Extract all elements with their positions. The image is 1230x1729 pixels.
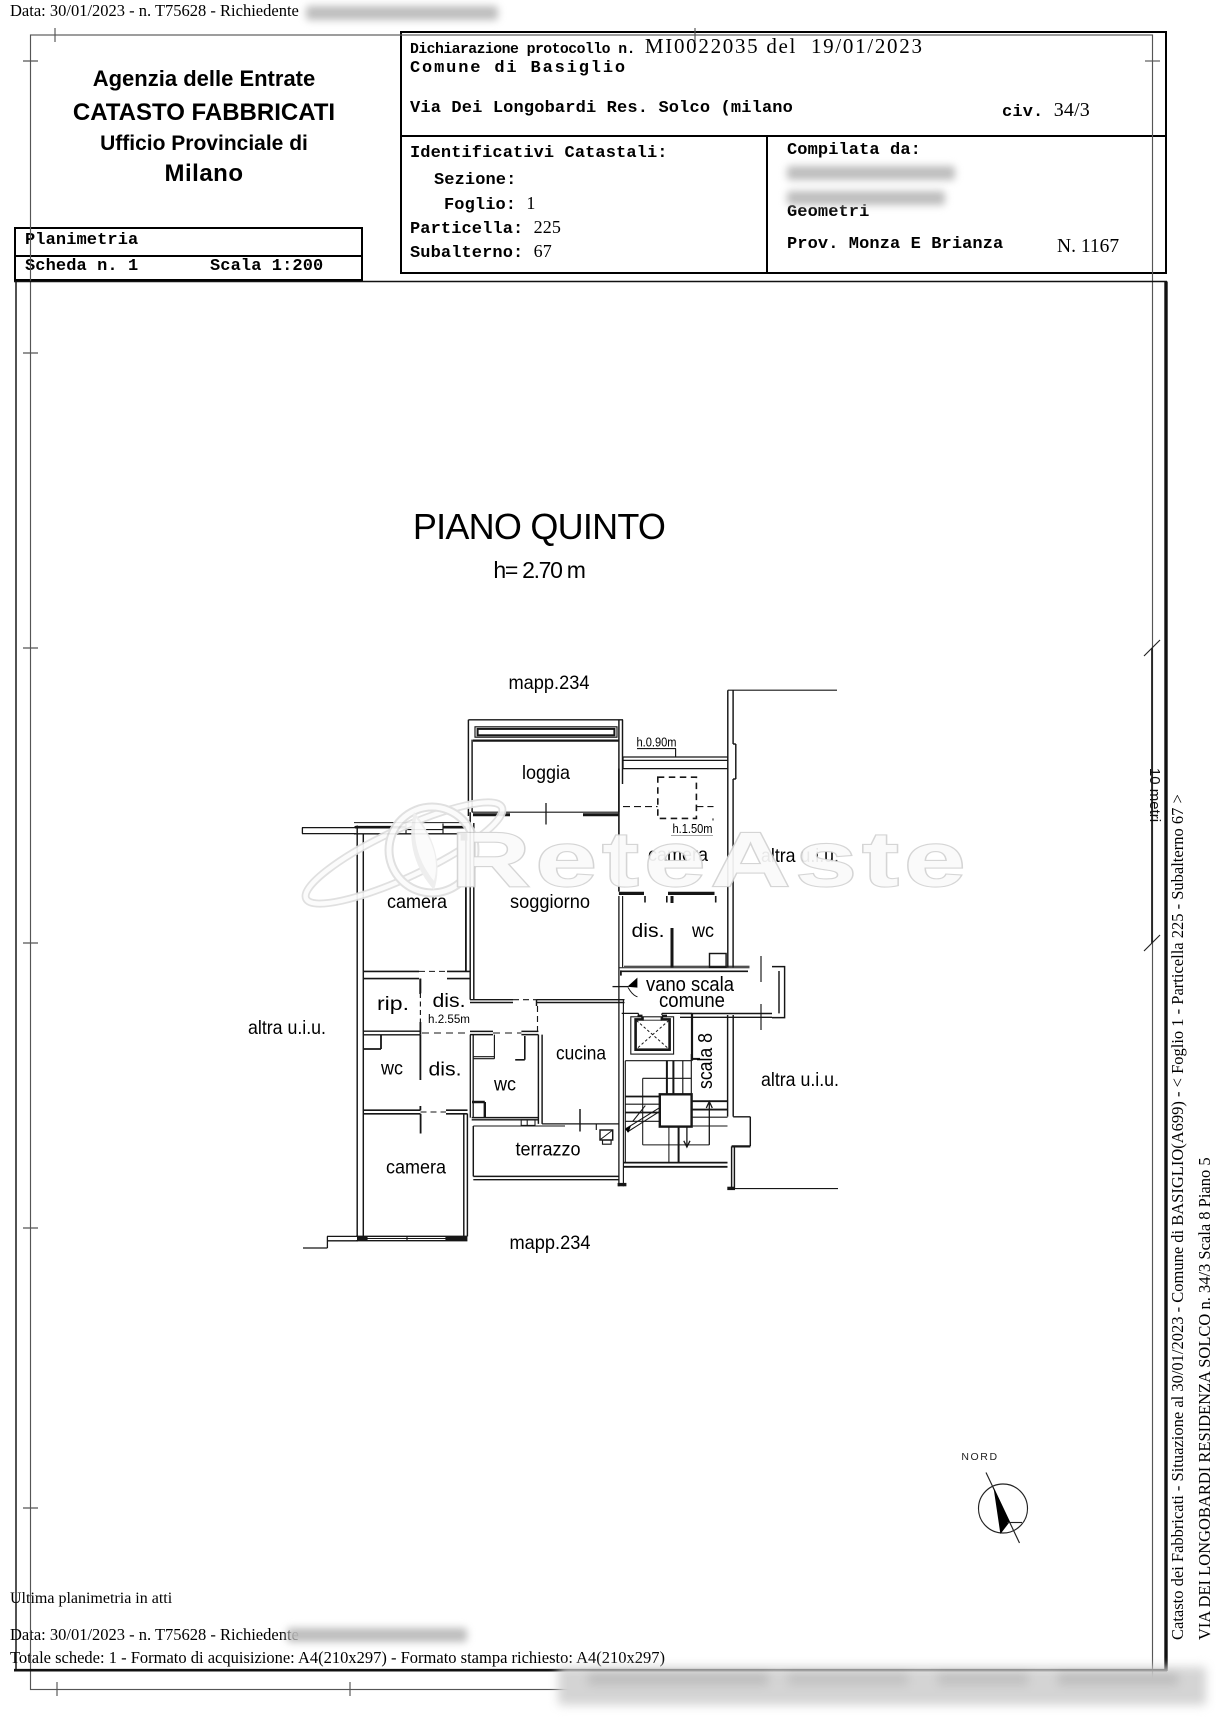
svg-text:cucina: cucina (556, 1043, 606, 1065)
svg-text:h.2.55m: h.2.55m (428, 1014, 470, 1026)
svg-text:mapp.234: mapp.234 (510, 1232, 591, 1254)
svg-text:mapp.234: mapp.234 (509, 672, 590, 694)
svg-text:terrazzo: terrazzo (516, 1139, 581, 1161)
svg-text:wc: wc (493, 1074, 516, 1096)
svg-text:wc: wc (380, 1058, 403, 1080)
svg-text:h.0.90m: h.0.90m (637, 736, 677, 750)
svg-text:loggia: loggia (522, 762, 570, 784)
svg-text:NORD: NORD (961, 1451, 998, 1463)
svg-text:rip.: rip. (377, 993, 409, 1015)
svg-text:dis.: dis. (429, 1059, 462, 1081)
svg-text:comune: comune (659, 990, 725, 1012)
svg-text:Catasto dei Fabbricati - Situa: Catasto dei Fabbricati - Situazione al 3… (1168, 794, 1187, 1640)
svg-text:ReteAste: ReteAste (451, 817, 971, 903)
svg-text:10 metri: 10 metri (1146, 768, 1163, 822)
svg-text:scala 8: scala 8 (695, 1033, 717, 1089)
svg-text:VIA DEI LONGOBARDI RESIDENZA S: VIA DEI LONGOBARDI RESIDENZA SOLCO n. 34… (1195, 1157, 1214, 1640)
svg-text:altra u.i.u.: altra u.i.u. (761, 1069, 839, 1091)
svg-text:altra u.i.u.: altra u.i.u. (248, 1017, 326, 1039)
svg-text:camera: camera (386, 1157, 446, 1179)
svg-text:dis.: dis. (632, 920, 665, 942)
svg-text:wc: wc (691, 920, 714, 942)
svg-text:dis.: dis. (433, 990, 466, 1012)
